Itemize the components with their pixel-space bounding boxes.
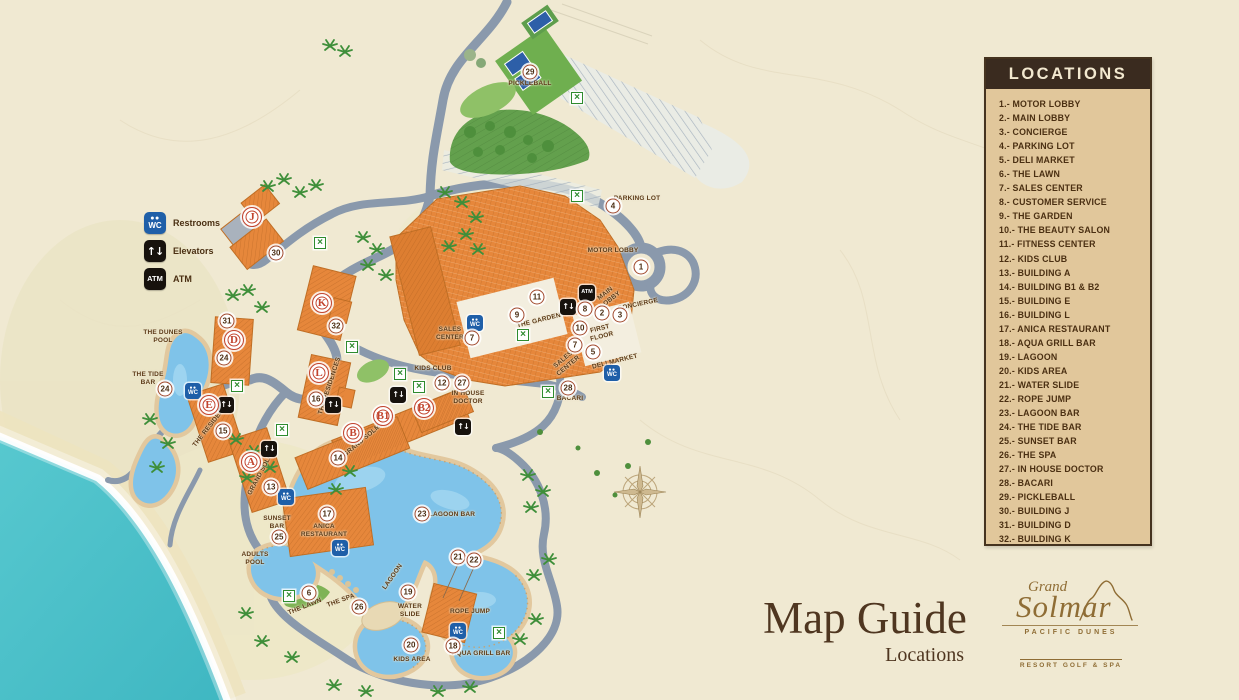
- legend-item-29: 29.- PICKLEBALL: [999, 490, 1144, 504]
- map-marker-13: 13: [264, 480, 279, 495]
- key-row-atm: ATM ATM: [144, 268, 254, 290]
- map-marker-18: 18: [446, 639, 461, 654]
- restroom-icon: ●●WC: [332, 540, 348, 556]
- legend-item-14: 14.- BUILDING B1 & B2: [999, 280, 1144, 294]
- map-label: ANICA RESTAURANT: [301, 523, 347, 539]
- map-label: MOTOR LOBBY: [588, 247, 639, 255]
- map-marker-14: 14: [331, 451, 346, 466]
- map-label: AQUA GRILL BAR: [452, 650, 511, 658]
- map-label: WATER SLIDE: [398, 603, 422, 619]
- locations-legend: LOCATIONS 1.- MOTOR LOBBY2.- MAIN LOBBY3…: [984, 57, 1152, 546]
- map-marker-12: 12: [435, 376, 450, 391]
- legend-item-24: 24.- THE TIDE BAR: [999, 420, 1144, 434]
- legend-item-25: 25.- SUNSET BAR: [999, 434, 1144, 448]
- map-label: BACARI: [557, 395, 583, 403]
- key-label-atm: ATM: [173, 275, 192, 284]
- legend-item-9: 9.- THE GARDEN: [999, 209, 1144, 223]
- crossing-icon: ×: [517, 329, 529, 341]
- legend-item-6: 6.- THE LAWN: [999, 167, 1144, 181]
- legend-item-18: 18.- AQUA GRILL BAR: [999, 336, 1144, 350]
- legend-items: 1.- MOTOR LOBBY2.- MAIN LOBBY3.- CONCIER…: [986, 89, 1150, 547]
- building-letter-B2: B2: [414, 398, 434, 418]
- crossing-icon: ×: [314, 237, 326, 249]
- crossing-icon: ×: [542, 386, 554, 398]
- building-letter-E: E: [199, 395, 219, 415]
- legend-item-11: 11.- FITNESS CENTER: [999, 237, 1144, 251]
- map-marker-4: 4: [606, 199, 621, 214]
- map-label: SALES CENTER: [436, 326, 464, 342]
- legend-item-7: 7.- SALES CENTER: [999, 181, 1144, 195]
- map-label: ADULTS POOL: [241, 551, 268, 567]
- building-letter-L: L: [309, 363, 329, 383]
- map-marker-25: 25: [272, 530, 287, 545]
- map-marker-17: 17: [320, 507, 335, 522]
- legend-item-17: 17.- ANICA RESTAURANT: [999, 322, 1144, 336]
- map-marker-21: 21: [451, 550, 466, 565]
- map-marker-1: 1: [634, 260, 649, 275]
- rock-silhouette-icon: [1076, 578, 1134, 622]
- crossing-icon: ×: [283, 590, 295, 602]
- key-label-restrooms: Restrooms: [173, 219, 220, 228]
- key-row-elevators: ↑↓ Elevators: [144, 240, 254, 262]
- legend-item-4: 4.- PARKING LOT: [999, 139, 1144, 153]
- page-title: Map Guide: [758, 596, 972, 641]
- elevator-icon: ↑↓: [560, 299, 576, 315]
- legend-item-31: 31.- BUILDING D: [999, 518, 1144, 532]
- map-marker-5: 5: [586, 345, 601, 360]
- crossing-icon: ×: [346, 341, 358, 353]
- map-marker-8: 8: [578, 302, 593, 317]
- map-marker-7: 7: [465, 331, 480, 346]
- legend-item-13: 13.- BUILDING A: [999, 266, 1144, 280]
- map-marker-6: 6: [302, 586, 317, 601]
- crossing-icon: ×: [276, 424, 288, 436]
- legend-item-8: 8.- CUSTOMER SERVICE: [999, 195, 1144, 209]
- elevator-icon: ↑↓: [261, 441, 277, 457]
- map-guide-page: PARKING LOTMOTOR LOBBYMAIN LOBBYCONCIERG…: [0, 0, 1239, 700]
- crossing-icon: ×: [394, 368, 406, 380]
- map-marker-20: 20: [404, 638, 419, 653]
- legend-header: LOCATIONS: [986, 59, 1150, 89]
- brand-rule: [1002, 625, 1138, 626]
- map-marker-28: 28: [561, 381, 576, 396]
- map-marker-9: 9: [510, 308, 525, 323]
- map-marker-30: 30: [269, 246, 284, 261]
- map-marker-22: 22: [467, 553, 482, 568]
- restroom-icon: ●●WC: [450, 623, 466, 639]
- restrooms-icon: ●●WC: [144, 212, 166, 234]
- map-label: ROPE JUMP: [450, 608, 490, 616]
- legend-item-12: 12.- KIDS CLUB: [999, 252, 1144, 266]
- map-marker-16: 16: [309, 392, 324, 407]
- legend-item-32: 32.- BUILDING K: [999, 532, 1144, 546]
- restroom-icon: ●●WC: [185, 383, 201, 399]
- elevators-icon: ↑↓: [144, 240, 166, 262]
- map-label: FIRST FLOOR: [588, 323, 615, 344]
- elevator-icon: ↑↓: [325, 397, 341, 413]
- building-letter-K: K: [312, 293, 332, 313]
- legend-item-16: 16.- BUILDING L: [999, 308, 1144, 322]
- key-label-elevators: Elevators: [173, 247, 214, 256]
- map-marker-32: 32: [329, 319, 344, 334]
- legend-item-1: 1.- MOTOR LOBBY: [999, 97, 1144, 111]
- building-letter-B1: B1: [373, 406, 393, 426]
- legend-title: LOCATIONS: [1009, 65, 1127, 84]
- legend-item-22: 22.- ROPE JUMP: [999, 392, 1144, 406]
- map-label: KIDS CLUB: [414, 365, 451, 373]
- map-marker-2: 2: [595, 306, 610, 321]
- restroom-icon: ●●WC: [604, 365, 620, 381]
- map-marker-29: 29: [523, 65, 538, 80]
- brand-line1: PACIFIC DUNES: [1002, 629, 1140, 636]
- legend-item-10: 10.- THE BEAUTY SALON: [999, 223, 1144, 237]
- map-marker-10: 10: [573, 321, 588, 336]
- legend-item-28: 28.- BACARI: [999, 476, 1144, 490]
- map-label: SALES CENTER: [550, 348, 581, 378]
- page-subtitle: Locations: [758, 645, 972, 665]
- grand-solmar-logo: Grand Solmar PACIFIC DUNES RESORT GOLF &…: [1002, 580, 1140, 672]
- legend-item-3: 3.- CONCIERGE: [999, 125, 1144, 139]
- building-letter-B: B: [343, 423, 363, 443]
- map-marker-19: 19: [401, 585, 416, 600]
- map-label: PARKING LOT: [614, 195, 661, 203]
- building-letter-D: D: [224, 330, 244, 350]
- map-marker-11: 11: [530, 290, 545, 305]
- brand-line2: RESORT GOLF & SPA: [1020, 659, 1122, 670]
- restroom-icon: ●●WC: [278, 489, 294, 505]
- crossing-icon: ×: [493, 627, 505, 639]
- legend-item-20: 20.- KIDS AREA: [999, 364, 1144, 378]
- map-marker-15: 15: [216, 424, 231, 439]
- map-marker-3: 3: [613, 308, 628, 323]
- map-label: LAGOON BAR: [429, 511, 475, 519]
- map-marker-27: 27: [455, 376, 470, 391]
- crossing-icon: ×: [413, 381, 425, 393]
- crossing-icon: ×: [571, 190, 583, 202]
- restroom-icon: ●●WC: [467, 315, 483, 331]
- elevator-icon: ↑↓: [218, 397, 234, 413]
- legend-item-27: 27.- IN HOUSE DOCTOR: [999, 462, 1144, 476]
- map-label: PICKLEBALL: [508, 80, 551, 88]
- key-row-restrooms: ●●WC Restrooms: [144, 212, 254, 234]
- atm-icon: ATM: [144, 268, 166, 290]
- crossing-icon: ×: [231, 380, 243, 392]
- map-marker-24: 24: [158, 382, 173, 397]
- legend-item-15: 15.- BUILDING E: [999, 294, 1144, 308]
- map-label: SUNSET BAR: [263, 515, 291, 531]
- atm-icon: ATM: [579, 285, 595, 301]
- building-letter-A: A: [241, 452, 261, 472]
- map-marker-7: 7: [568, 338, 583, 353]
- legend-item-2: 2.- MAIN LOBBY: [999, 111, 1144, 125]
- map-label: KIDS AREA: [393, 656, 430, 664]
- legend-item-30: 30.- BUILDING J: [999, 504, 1144, 518]
- legend-item-5: 5.- DELI MARKET: [999, 153, 1144, 167]
- map-marker-24: 24: [217, 351, 232, 366]
- map-marker-31: 31: [220, 314, 235, 329]
- legend-item-23: 23.- LAGOON BAR: [999, 406, 1144, 420]
- map-label: IN HOUSE DOCTOR: [451, 390, 484, 406]
- crossing-icon: ×: [571, 92, 583, 104]
- elevator-icon: ↑↓: [455, 419, 471, 435]
- elevator-icon: ↑↓: [390, 387, 406, 403]
- map-marker-23: 23: [415, 507, 430, 522]
- legend-item-26: 26.- THE SPA: [999, 448, 1144, 462]
- map-guide-title-block: Map Guide Locations: [758, 596, 972, 665]
- map-key: ●●WC Restrooms ↑↓ Elevators ATM ATM: [144, 212, 254, 296]
- map-label: THE DUNES POOL: [143, 329, 182, 345]
- legend-item-19: 19.- LAGOON: [999, 350, 1144, 364]
- map-marker-26: 26: [352, 600, 367, 615]
- legend-item-21: 21.- WATER SLIDE: [999, 378, 1144, 392]
